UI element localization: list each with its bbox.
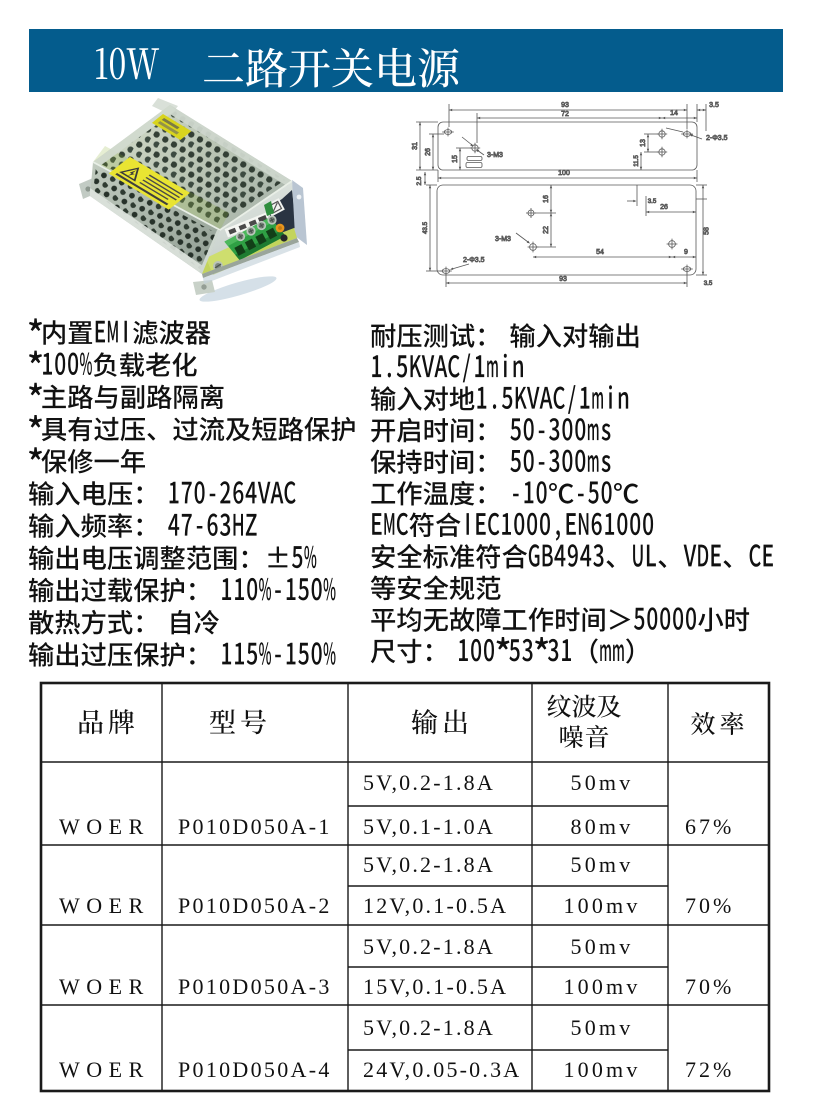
svg-text:58: 58 (704, 227, 711, 235)
svg-text:3.5: 3.5 (704, 280, 713, 287)
svg-text:11.5: 11.5 (633, 155, 640, 167)
svg-text:WOER: WOER (59, 974, 150, 999)
svg-text:P010D050A-3: P010D050A-3 (178, 974, 332, 999)
svg-text:9: 9 (684, 249, 688, 256)
svg-text:14: 14 (670, 110, 678, 117)
svg-text:5V,0.2-1.8A: 5V,0.2-1.8A (363, 934, 495, 959)
svg-text:93: 93 (559, 276, 567, 283)
svg-text:43.5: 43.5 (422, 221, 429, 234)
svg-text:3-M3: 3-M3 (495, 236, 511, 243)
svg-text:2.5: 2.5 (416, 176, 423, 185)
svg-text:70%: 70% (685, 974, 734, 999)
svg-text:50mv: 50mv (571, 1015, 634, 1040)
svg-text:5V,0.1-1.0A: 5V,0.1-1.0A (363, 814, 495, 839)
svg-text:24V,0.05-0.3A: 24V,0.05-0.3A (363, 1057, 521, 1082)
svg-text:31: 31 (412, 142, 419, 150)
svg-text:26: 26 (660, 204, 668, 211)
svg-text:26: 26 (425, 148, 432, 156)
svg-text:3.5: 3.5 (709, 102, 719, 109)
svg-text:80mv: 80mv (571, 814, 634, 839)
svg-text:5V,0.2-1.8A: 5V,0.2-1.8A (363, 852, 495, 877)
svg-text:WOER: WOER (59, 814, 150, 839)
svg-text:72: 72 (561, 111, 569, 118)
svg-text:3-M3: 3-M3 (487, 152, 503, 159)
svg-text:12V,0.1-0.5A: 12V,0.1-0.5A (363, 893, 508, 918)
svg-text:100: 100 (558, 170, 570, 177)
svg-text:5V,0.2-1.8A: 5V,0.2-1.8A (363, 770, 495, 795)
svg-text:22: 22 (543, 226, 550, 234)
svg-text:2-Φ3.5: 2-Φ3.5 (706, 135, 728, 142)
svg-text:70%: 70% (685, 893, 734, 918)
svg-text:54: 54 (596, 249, 604, 256)
svg-text:93: 93 (561, 102, 569, 109)
svg-text:P010D050A-4: P010D050A-4 (178, 1057, 332, 1082)
svg-text:WOER: WOER (59, 1057, 150, 1082)
svg-text:2-Φ3.5: 2-Φ3.5 (463, 257, 485, 264)
svg-text:100mv: 100mv (563, 1057, 640, 1082)
svg-text:72%: 72% (685, 1057, 734, 1082)
svg-text:WOER: WOER (59, 893, 150, 918)
svg-text:50mv: 50mv (571, 770, 634, 795)
svg-text:P010D050A-1: P010D050A-1 (178, 814, 332, 839)
svg-text:15: 15 (452, 155, 459, 163)
svg-text:100mv: 100mv (563, 974, 640, 999)
svg-text:P010D050A-2: P010D050A-2 (178, 893, 332, 918)
svg-text:16: 16 (543, 195, 550, 203)
svg-text:100mv: 100mv (563, 893, 640, 918)
svg-text:5V,0.2-1.8A: 5V,0.2-1.8A (363, 1015, 495, 1040)
svg-text:13: 13 (640, 139, 647, 147)
svg-text:50mv: 50mv (571, 852, 634, 877)
svg-text:50mv: 50mv (571, 934, 634, 959)
svg-text:67%: 67% (685, 814, 734, 839)
svg-text:3.5: 3.5 (648, 198, 657, 205)
svg-text:15V,0.1-0.5A: 15V,0.1-0.5A (363, 974, 508, 999)
